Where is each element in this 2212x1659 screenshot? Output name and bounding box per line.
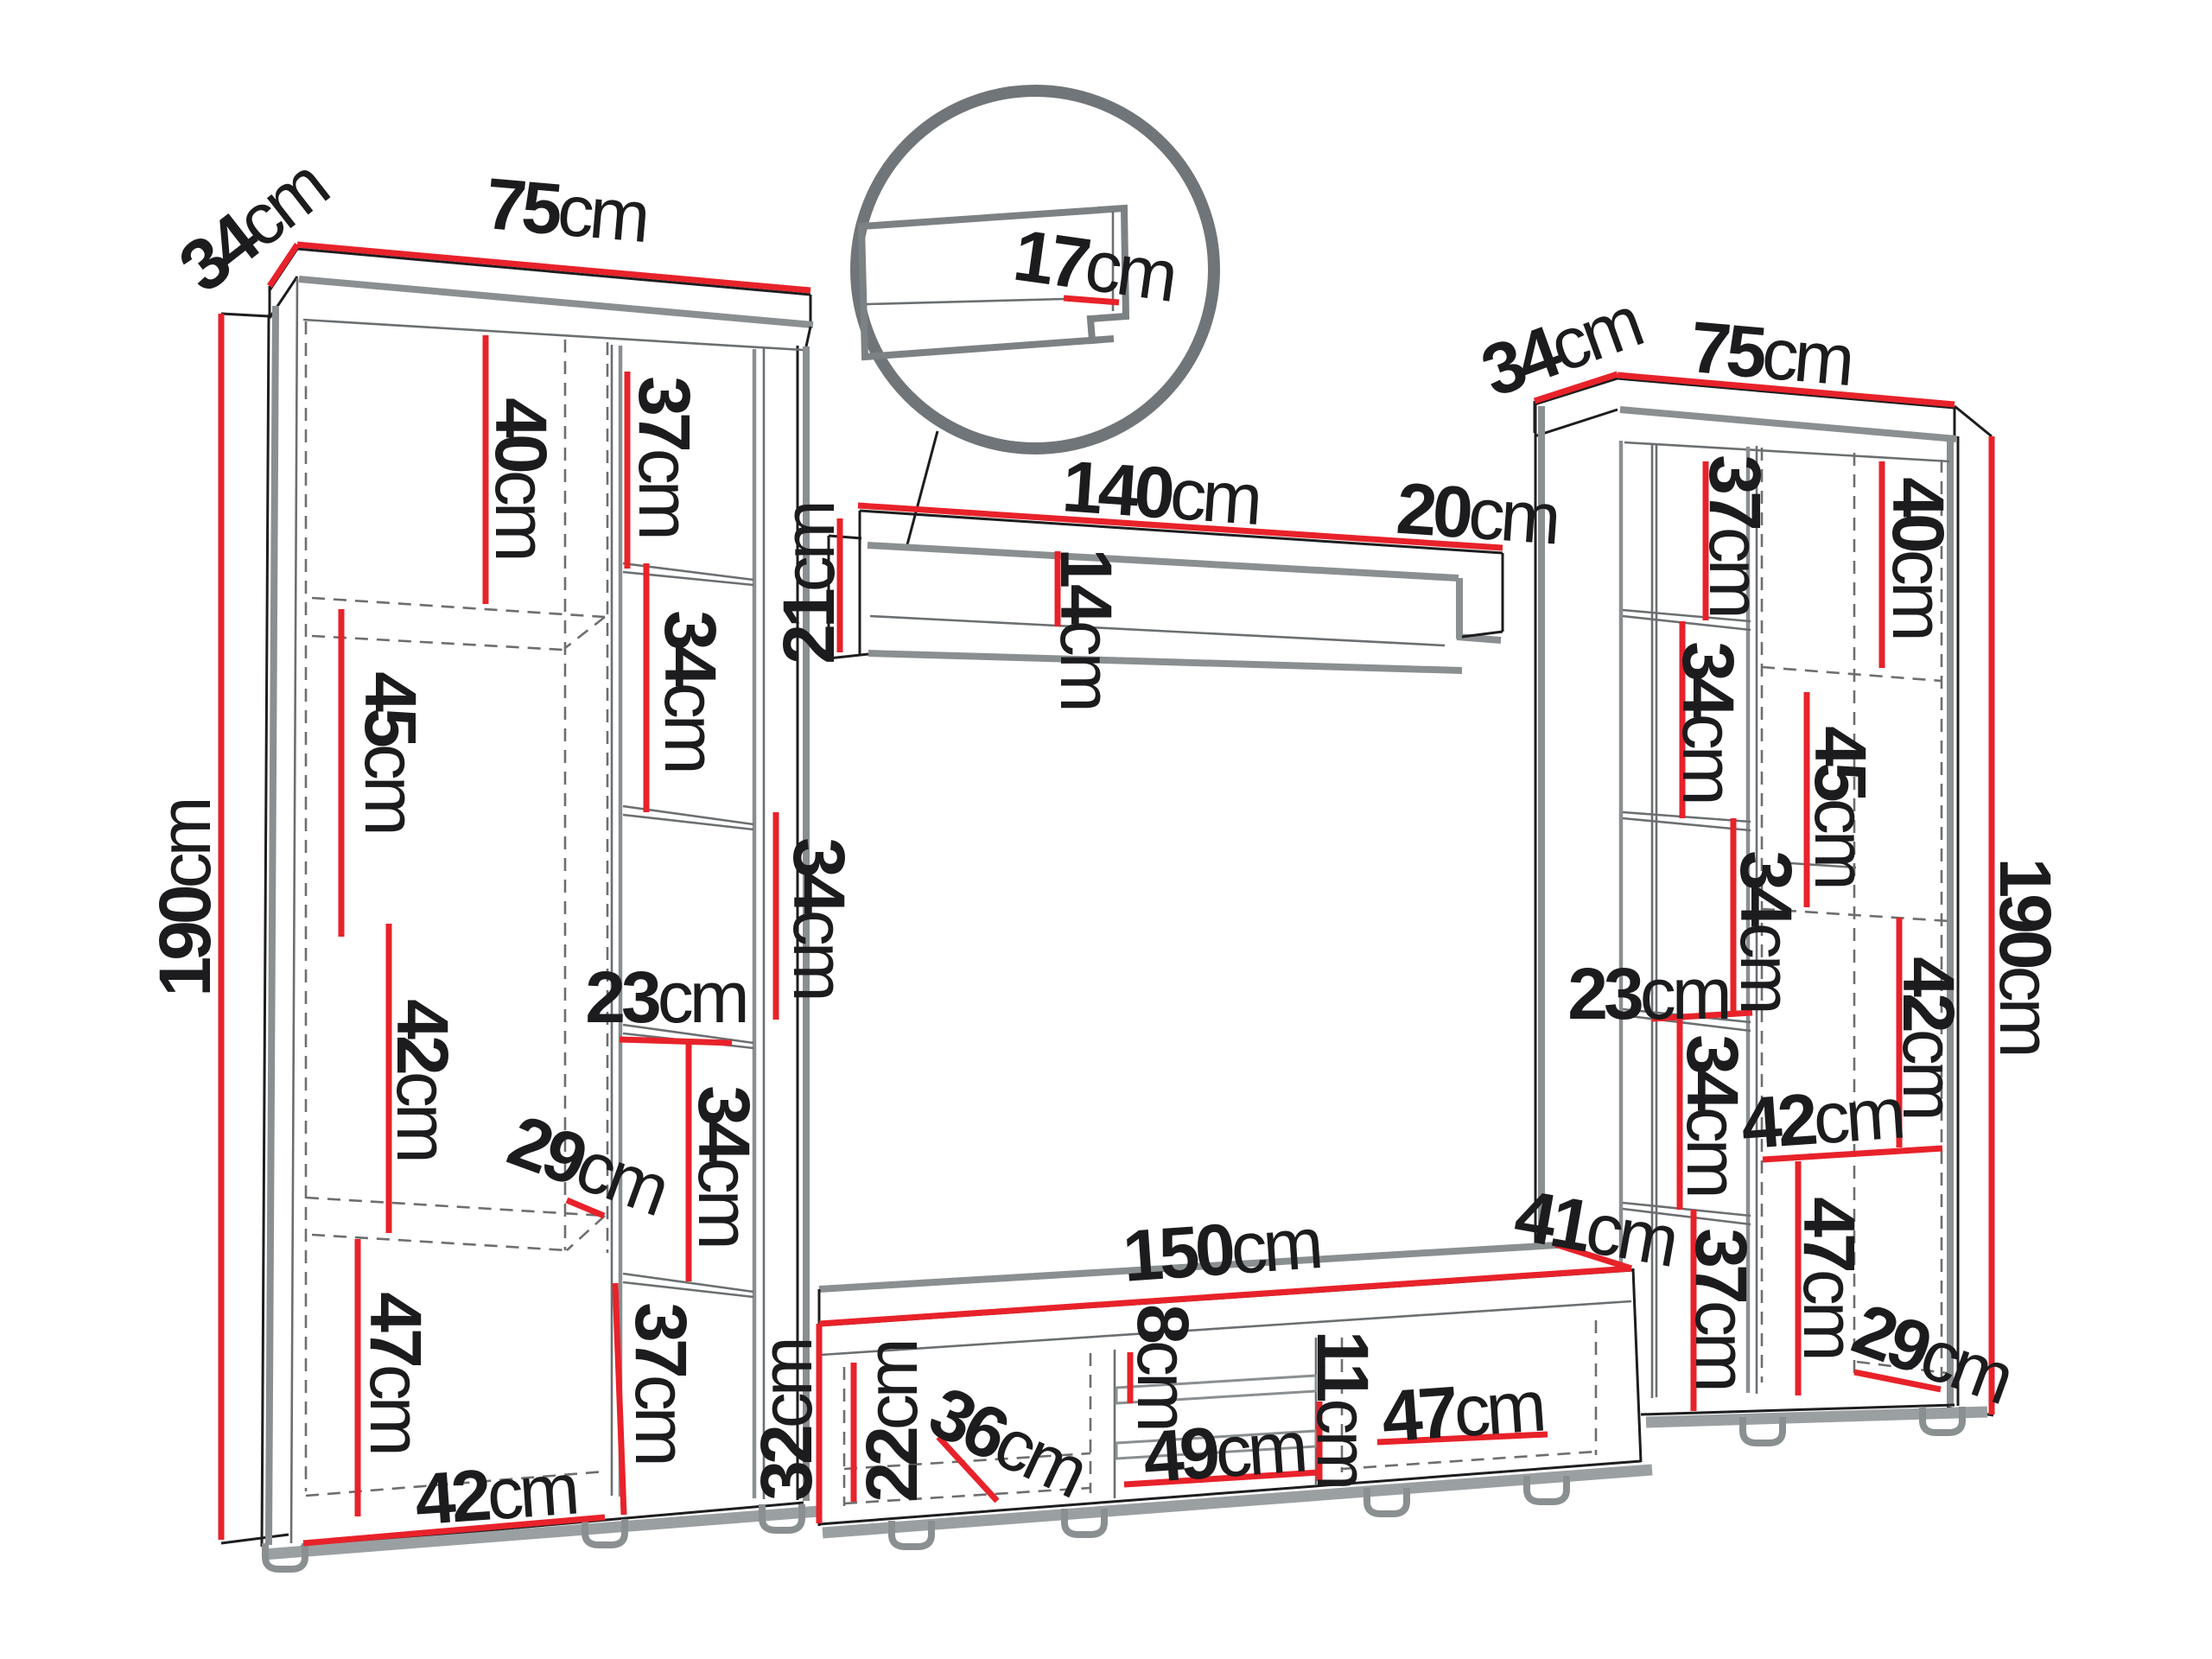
svg-text:150cm: 150cm xyxy=(1120,1202,1321,1297)
svg-text:42cm: 42cm xyxy=(1738,1072,1904,1165)
svg-text:140cm: 140cm xyxy=(1059,445,1261,540)
svg-text:37cm: 37cm xyxy=(1694,454,1776,614)
svg-text:45cm: 45cm xyxy=(1800,726,1881,886)
svg-text:21cm: 21cm xyxy=(768,504,849,664)
svg-text:34cm: 34cm xyxy=(1668,641,1749,801)
svg-text:34cm: 34cm xyxy=(1726,850,1807,1010)
svg-text:23cm: 23cm xyxy=(585,957,745,1038)
svg-text:37cm: 37cm xyxy=(620,1302,702,1462)
svg-text:14cm: 14cm xyxy=(1046,548,1127,708)
svg-text:42cm: 42cm xyxy=(412,1448,578,1541)
svg-text:11cm: 11cm xyxy=(1302,1331,1383,1487)
svg-text:45cm: 45cm xyxy=(350,671,431,831)
svg-text:75cm: 75cm xyxy=(483,162,650,257)
svg-text:20cm: 20cm xyxy=(1394,467,1560,560)
svg-text:37cm: 37cm xyxy=(1681,1228,1762,1388)
svg-text:47cm: 47cm xyxy=(355,1292,436,1452)
svg-text:75cm: 75cm xyxy=(1688,306,1854,401)
svg-text:190cm: 190cm xyxy=(1985,857,2066,1053)
svg-text:42cm: 42cm xyxy=(1888,957,1969,1116)
svg-text:8cm: 8cm xyxy=(1122,1304,1204,1428)
svg-text:22cm: 22cm xyxy=(851,1342,932,1502)
svg-text:34cm: 34cm xyxy=(650,610,731,770)
svg-text:37cm: 37cm xyxy=(624,376,705,536)
svg-text:40cm: 40cm xyxy=(1878,477,1959,637)
svg-text:32cm: 32cm xyxy=(746,1340,827,1500)
svg-text:42cm: 42cm xyxy=(382,999,463,1159)
svg-text:49cm: 49cm xyxy=(1141,1406,1306,1498)
svg-text:34cm: 34cm xyxy=(779,837,860,997)
svg-text:47cm: 47cm xyxy=(1379,1365,1545,1458)
svg-text:40cm: 40cm xyxy=(480,397,562,557)
svg-text:34cm: 34cm xyxy=(683,1085,765,1245)
svg-text:23cm: 23cm xyxy=(1567,953,1727,1034)
svg-text:190cm: 190cm xyxy=(144,800,226,996)
